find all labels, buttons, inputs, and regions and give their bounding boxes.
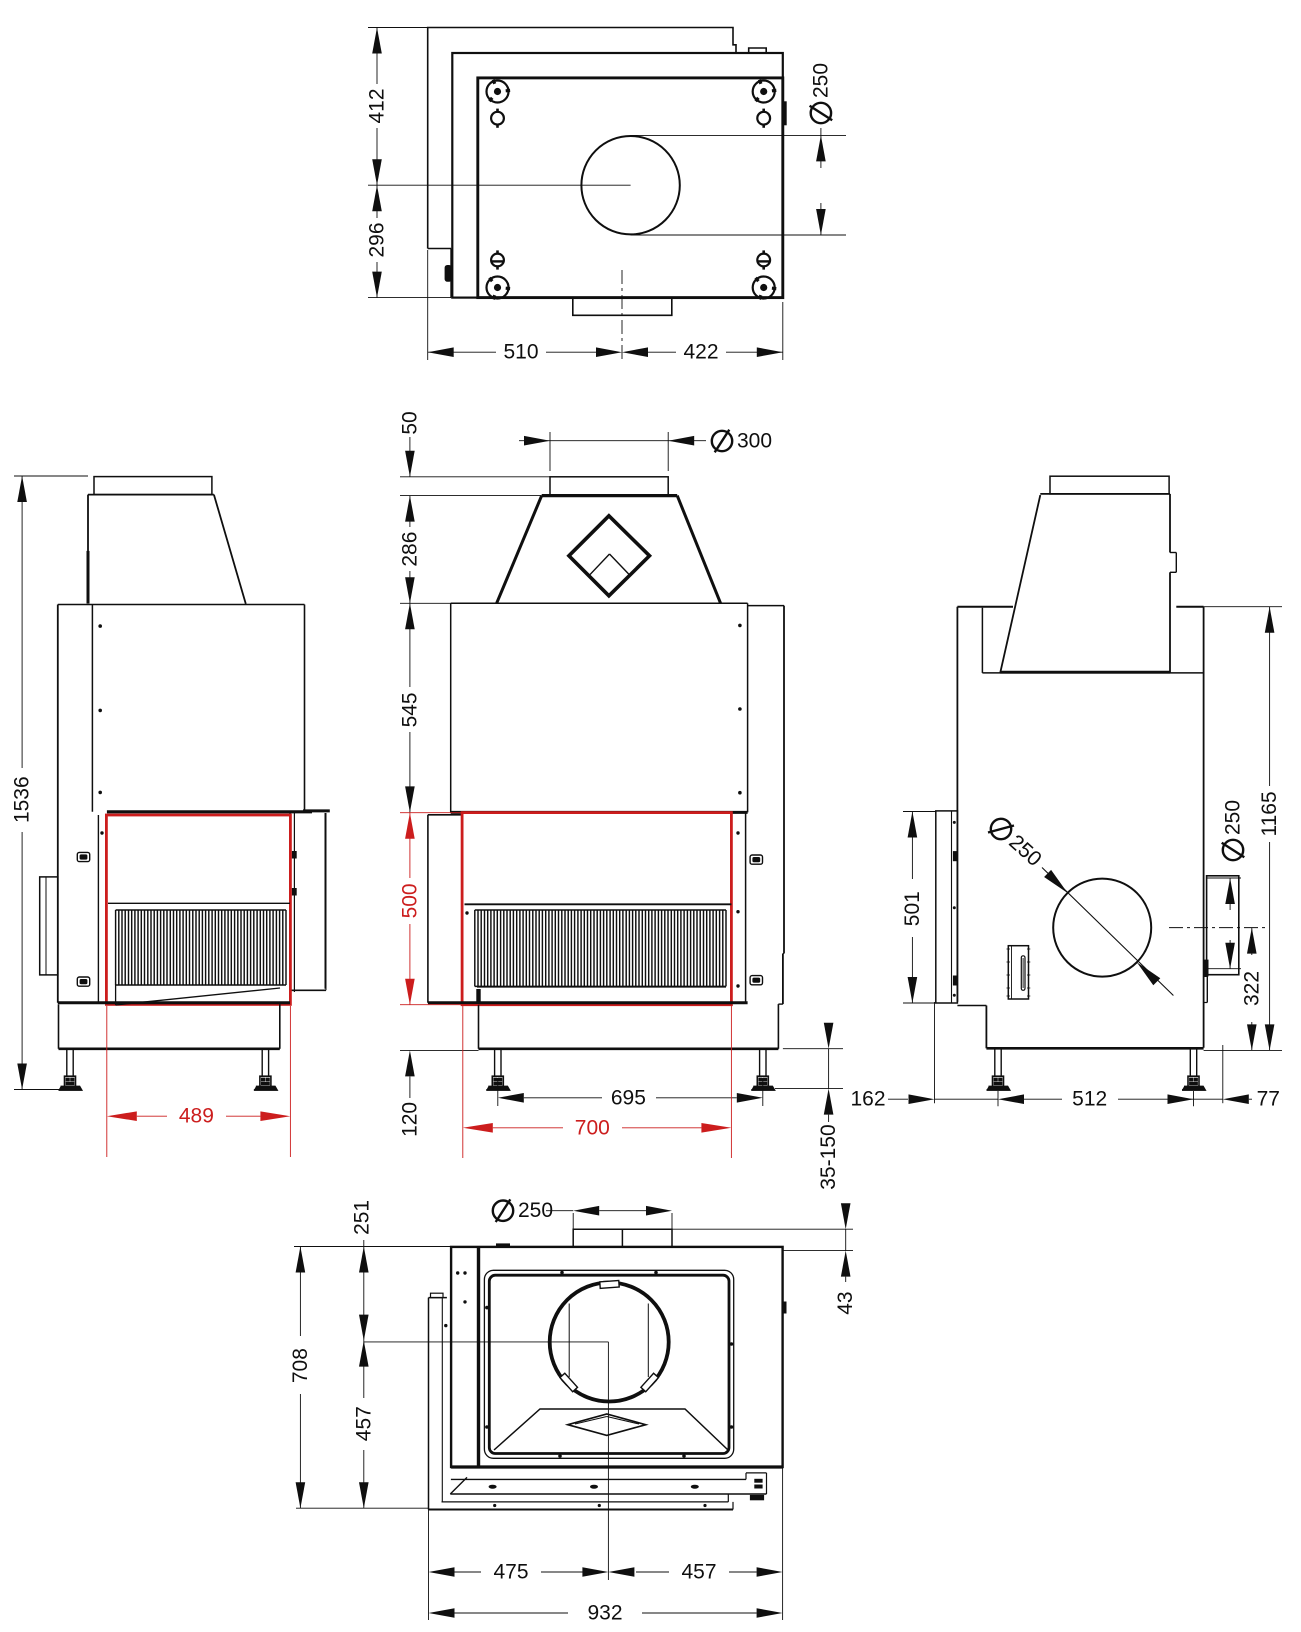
svg-text:545: 545: [398, 692, 421, 727]
svg-text:412: 412: [366, 88, 389, 123]
svg-text:708: 708: [289, 1348, 312, 1383]
svg-text:932: 932: [587, 1602, 622, 1625]
svg-text:510: 510: [503, 341, 538, 364]
svg-text:43: 43: [834, 1291, 857, 1314]
svg-text:695: 695: [611, 1086, 646, 1109]
svg-text:1536: 1536: [11, 776, 34, 823]
svg-text:422: 422: [683, 341, 718, 364]
svg-text:501: 501: [901, 891, 924, 926]
svg-text:77: 77: [1257, 1088, 1280, 1111]
svg-text:500: 500: [398, 883, 421, 918]
svg-text:300: 300: [737, 430, 772, 453]
svg-text:457: 457: [681, 1561, 716, 1584]
svg-text:296: 296: [366, 222, 389, 257]
svg-text:475: 475: [493, 1561, 528, 1584]
svg-text:489: 489: [179, 1105, 214, 1128]
svg-text:1165: 1165: [1258, 791, 1281, 836]
svg-text:250: 250: [809, 63, 832, 98]
svg-text:50: 50: [398, 411, 421, 434]
svg-text:251: 251: [350, 1200, 373, 1235]
svg-text:162: 162: [850, 1088, 885, 1111]
svg-text:120: 120: [398, 1102, 421, 1137]
svg-text:250: 250: [1222, 800, 1245, 835]
svg-text:35-150: 35-150: [817, 1124, 840, 1189]
svg-text:286: 286: [398, 532, 421, 567]
svg-text:700: 700: [575, 1116, 610, 1139]
svg-text:457: 457: [352, 1406, 375, 1441]
svg-text:250: 250: [518, 1199, 553, 1222]
svg-text:512: 512: [1072, 1088, 1107, 1111]
svg-text:322: 322: [1240, 971, 1263, 1006]
